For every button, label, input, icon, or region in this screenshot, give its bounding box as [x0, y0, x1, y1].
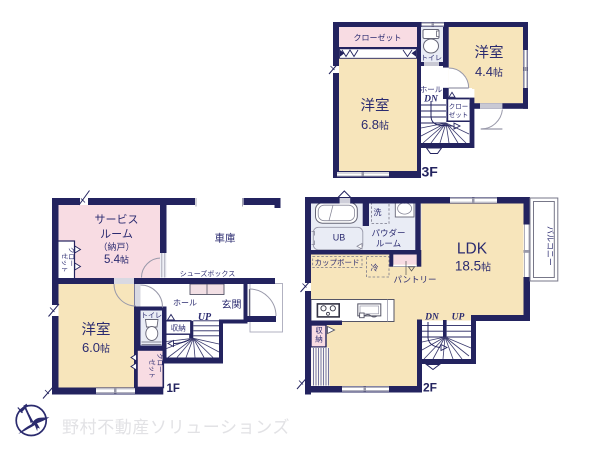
svg-text:冷: 冷	[371, 263, 379, 273]
svg-text:クロー: クロー	[449, 103, 469, 111]
svg-text:ゼット: ゼット	[449, 110, 469, 119]
svg-text:トイレ: トイレ	[421, 55, 442, 62]
svg-text:1F: 1F	[167, 383, 180, 395]
svg-text:バルコニー: バルコニー	[546, 226, 555, 266]
svg-text:ゼット: ゼット	[61, 253, 70, 273]
svg-text:UP: UP	[452, 313, 465, 323]
svg-text:サービス: サービス	[95, 213, 139, 226]
svg-text:クロー: クロー	[68, 247, 76, 267]
svg-text:トイレ: トイレ	[141, 313, 162, 320]
svg-text:クロー: クロー	[156, 353, 164, 373]
svg-text:UB: UB	[333, 233, 346, 243]
svg-text:UP: UP	[198, 312, 212, 323]
svg-text:車庫: 車庫	[215, 232, 236, 245]
svg-text:ホール: ホール	[173, 299, 197, 308]
svg-text:LDK: LDK	[457, 241, 488, 258]
svg-text:5.4帖: 5.4帖	[104, 254, 129, 266]
svg-text:パウダー: パウダー	[371, 228, 405, 238]
svg-text:DN: DN	[423, 95, 439, 105]
svg-text:ルーム: ルーム	[100, 228, 133, 241]
svg-text:収納: 収納	[171, 323, 186, 333]
svg-text:ルーム: ルーム	[376, 239, 401, 249]
svg-text:洋室: 洋室	[82, 322, 111, 339]
svg-text:3F: 3F	[422, 164, 439, 180]
svg-text:ホール: ホール	[420, 85, 443, 94]
svg-text:カップボード: カップボード	[315, 258, 360, 267]
svg-text:シューズボックス: シューズボックス	[180, 269, 235, 278]
svg-text:洋室: 洋室	[361, 98, 390, 115]
svg-text:洋室: 洋室	[475, 45, 504, 62]
svg-text:2F: 2F	[423, 381, 437, 395]
svg-text:パントリー: パントリー	[394, 275, 437, 285]
svg-text:DN: DN	[424, 313, 440, 323]
svg-text:（納戸）: （納戸）	[98, 241, 134, 252]
svg-text:納: 納	[315, 334, 323, 344]
svg-text:洗: 洗	[374, 207, 382, 217]
svg-text:クローゼット: クローゼット	[354, 33, 402, 43]
svg-text:野村不動産ソリューションズ: 野村不動産ソリューションズ	[62, 418, 290, 437]
svg-text:ゼット: ゼット	[148, 359, 157, 379]
svg-text:玄関: 玄関	[222, 298, 242, 311]
